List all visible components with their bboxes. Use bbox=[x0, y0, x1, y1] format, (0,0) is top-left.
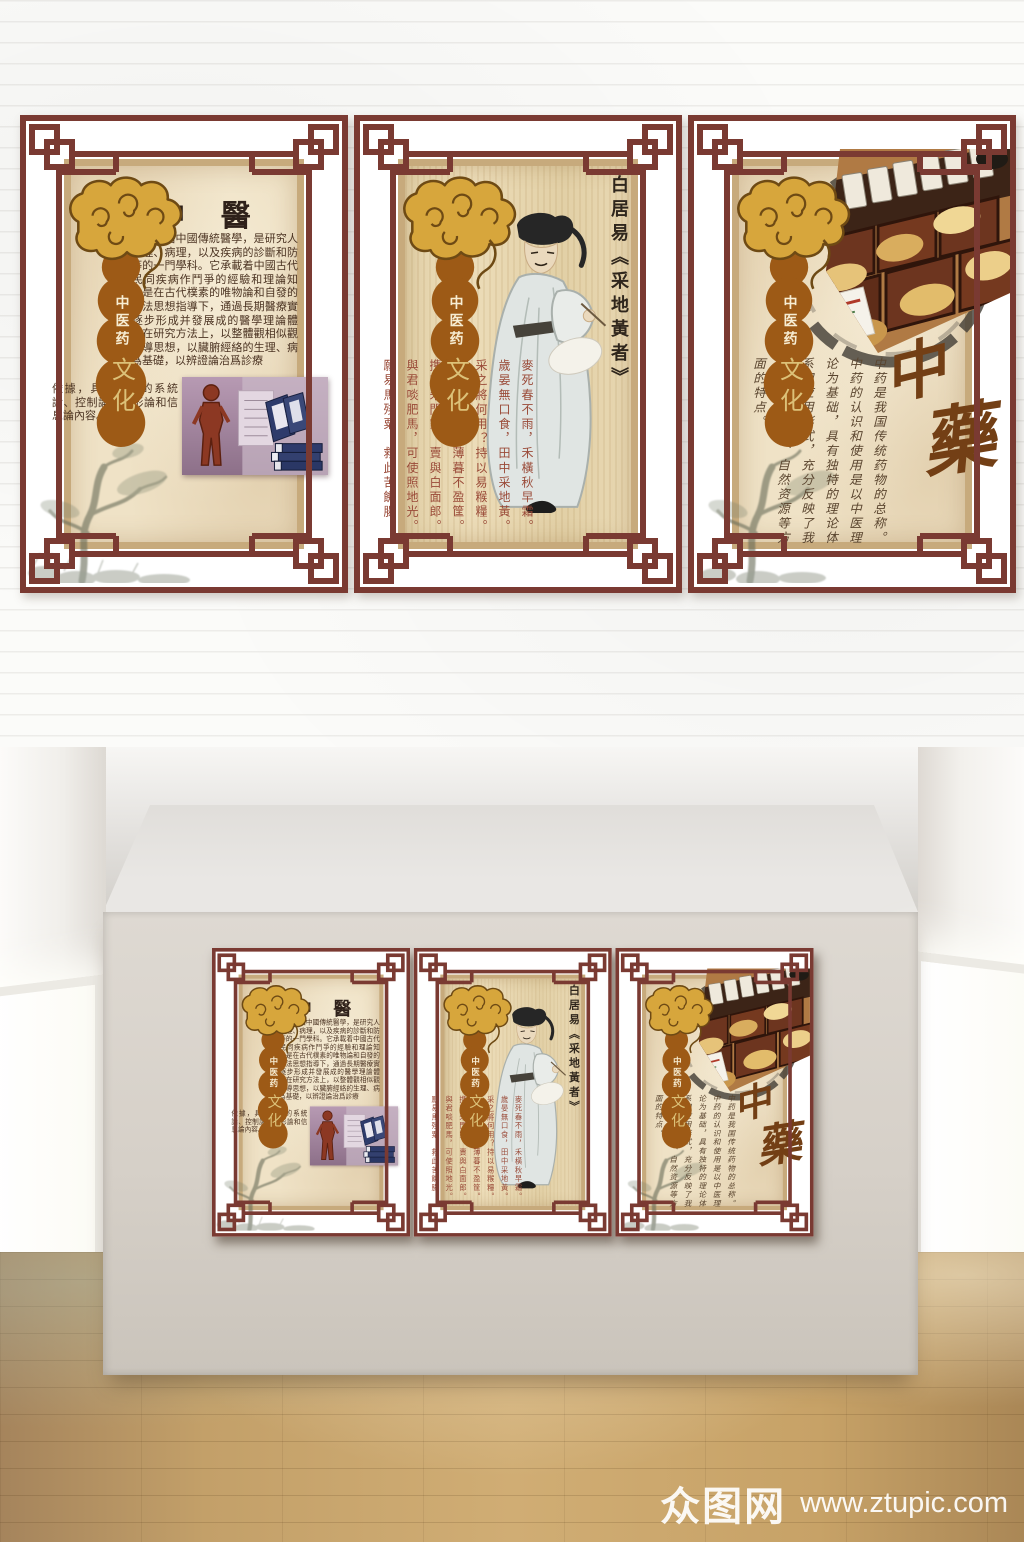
badge-label-line2: 文化 bbox=[442, 349, 468, 419]
panel-poem: 中医药文化 白居易《采地黃者》 麥死春不雨，禾橫秋早霜。 歲晏無口食，田中采地黃… bbox=[354, 115, 682, 593]
gourd-badge: 中医药文化 bbox=[638, 984, 723, 1159]
panel-zhongyi: 中医药文化 中 醫 中醫指中國傳統醫學，是研究人體生理、病理，以及疾病的診斷和防… bbox=[20, 115, 348, 593]
badge-label-line2: 文化 bbox=[776, 349, 802, 419]
badge-label: 中医药文化 bbox=[82, 277, 160, 437]
mockup-poster-strip: 中医药文化 中 醫 中醫指中國傳統醫學，是研究人體生理、病理，以及疾病的診斷和防… bbox=[212, 948, 814, 1237]
panel-poem: 中医药文化 白居易《采地黃者》 麥死春不雨，禾橫秋早霜。 歲晏無口食，田中采地黃… bbox=[414, 948, 612, 1237]
poem-title: 白居易《采地黃者》 bbox=[606, 175, 632, 435]
badge-label-line2: 文化 bbox=[108, 349, 134, 419]
poster-strip: 中医药文化 中 醫 中醫指中國傳統醫學，是研究人體生理、病理，以及疾病的診斷和防… bbox=[20, 115, 1016, 593]
badge-label-line1: 中医药 bbox=[782, 295, 797, 349]
badge-label: 中医药文化 bbox=[451, 1046, 498, 1143]
badge-label-line1: 中医药 bbox=[672, 1057, 681, 1090]
badge-label-line1: 中医药 bbox=[268, 1057, 277, 1090]
badge-label-line2: 文化 bbox=[467, 1089, 483, 1131]
calligraphy-char-2: 藥 bbox=[912, 376, 1002, 493]
watermark-logo: 众图网 bbox=[660, 1474, 786, 1532]
badge-label-line1: 中医药 bbox=[448, 295, 463, 349]
acupuncture-books-photo bbox=[182, 377, 328, 475]
panel-zhongyao: 中医药文化 中 藥 中药是我国传统药物的总称。中药的认识和使用是以中医理论为基础… bbox=[615, 948, 813, 1237]
calligraphy-char-2: 藥 bbox=[751, 1106, 805, 1177]
calligraphy-zhongyao: 中 藥 bbox=[876, 321, 1006, 501]
badge-label: 中医药文化 bbox=[653, 1046, 700, 1143]
badge-label-line2: 文化 bbox=[668, 1089, 684, 1131]
watermark: 众图网 www.ztupic.com bbox=[660, 1474, 1008, 1532]
badge-label-line2: 文化 bbox=[265, 1089, 281, 1131]
badge-label: 中医药文化 bbox=[750, 277, 828, 437]
badge-label: 中医药文化 bbox=[249, 1046, 296, 1143]
badge-label-line1: 中医药 bbox=[114, 295, 129, 349]
gourd-badge: 中医药文化 bbox=[58, 175, 198, 465]
badge-label: 中医药文化 bbox=[416, 277, 494, 437]
poem-title: 白居易《采地黃者》 bbox=[566, 984, 582, 1141]
gourd-badge: 中医药文化 bbox=[235, 984, 320, 1159]
badge-label-line1: 中医药 bbox=[470, 1057, 479, 1090]
gourd-badge: 中医药文化 bbox=[392, 175, 532, 465]
gourd-badge: 中医药文化 bbox=[726, 175, 866, 465]
white-wall-section: 中医药文化 中 醫 中醫指中國傳統醫學，是研究人體生理、病理，以及疾病的診斷和防… bbox=[0, 0, 1024, 747]
panel-zhongyao: 中医药文化 中 藥 中药是我国传统药物的总称。中药的认识和使用是以中医理论为基础… bbox=[688, 115, 1016, 593]
poster-strip: 中医药文化 中 醫 中醫指中國傳統醫學，是研究人體生理、病理，以及疾病的診斷和防… bbox=[212, 948, 814, 1237]
watermark-url: www.ztupic.com bbox=[800, 1487, 1008, 1520]
panel-zhongyi: 中医药文化 中 醫 中醫指中國傳統醫學，是研究人體生理、病理，以及疾病的診斷和防… bbox=[212, 948, 410, 1237]
acupuncture-books-photo bbox=[310, 1106, 398, 1165]
room-mockup-section: 中医药文化 中 醫 中醫指中國傳統醫學，是研究人體生理、病理，以及疾病的診斷和防… bbox=[0, 747, 1024, 1542]
calligraphy-zhongyao: 中 藥 bbox=[729, 1072, 808, 1181]
gourd-badge: 中医药文化 bbox=[437, 984, 522, 1159]
